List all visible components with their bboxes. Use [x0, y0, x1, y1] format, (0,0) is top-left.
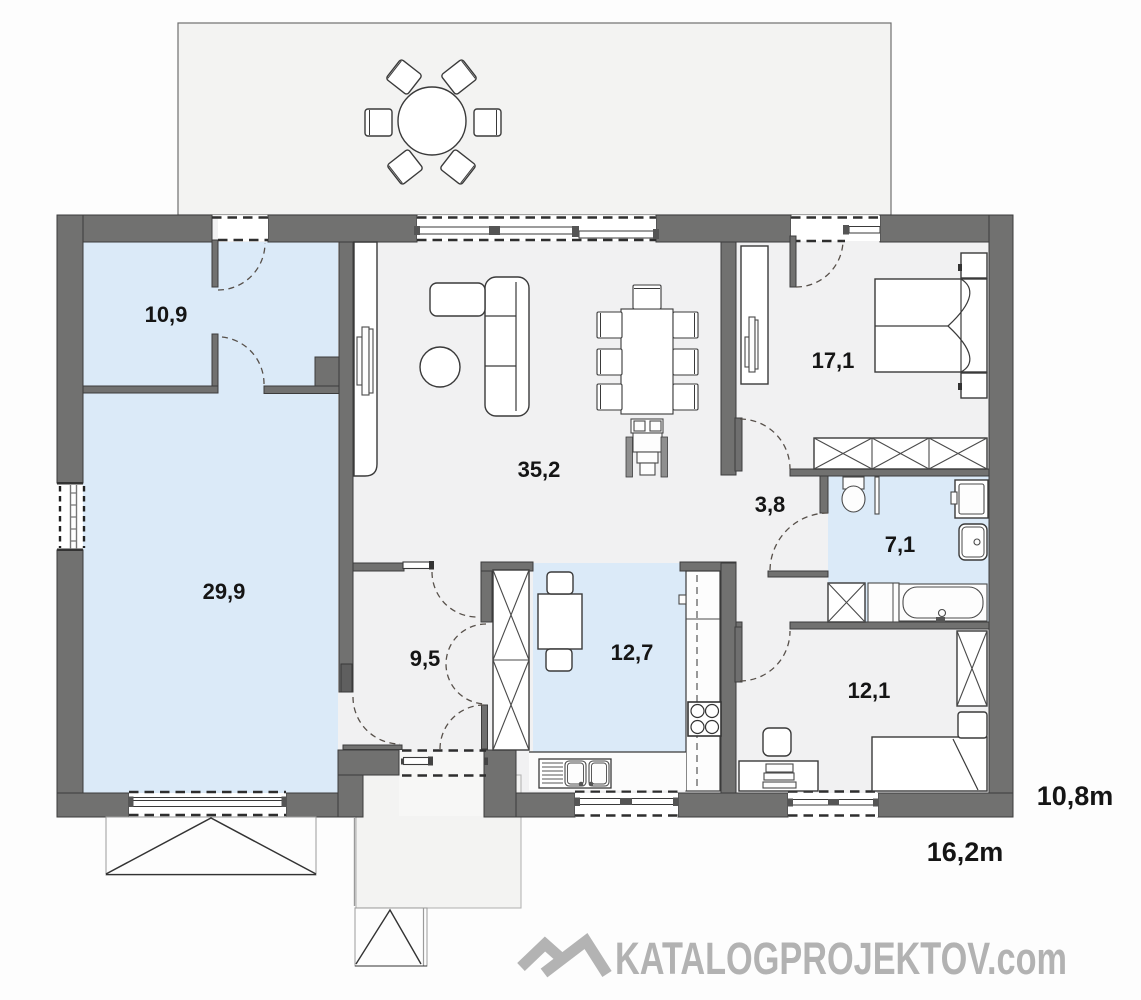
svg-text:35,2: 35,2: [518, 457, 561, 482]
svg-text:3,8: 3,8: [755, 492, 786, 517]
svg-text:10,8m: 10,8m: [1037, 781, 1114, 811]
svg-text:12,1: 12,1: [848, 678, 891, 703]
svg-text:17,1: 17,1: [812, 348, 855, 373]
svg-text:16,2m: 16,2m: [927, 837, 1004, 867]
svg-text:KATALOGPROJEKTOV.com: KATALOGPROJEKTOV.com: [615, 933, 1067, 984]
svg-text:29,9: 29,9: [203, 579, 246, 604]
svg-text:12,7: 12,7: [611, 640, 654, 665]
svg-text:9,5: 9,5: [410, 646, 441, 671]
svg-text:10,9: 10,9: [145, 302, 188, 327]
svg-text:7,1: 7,1: [885, 532, 916, 557]
